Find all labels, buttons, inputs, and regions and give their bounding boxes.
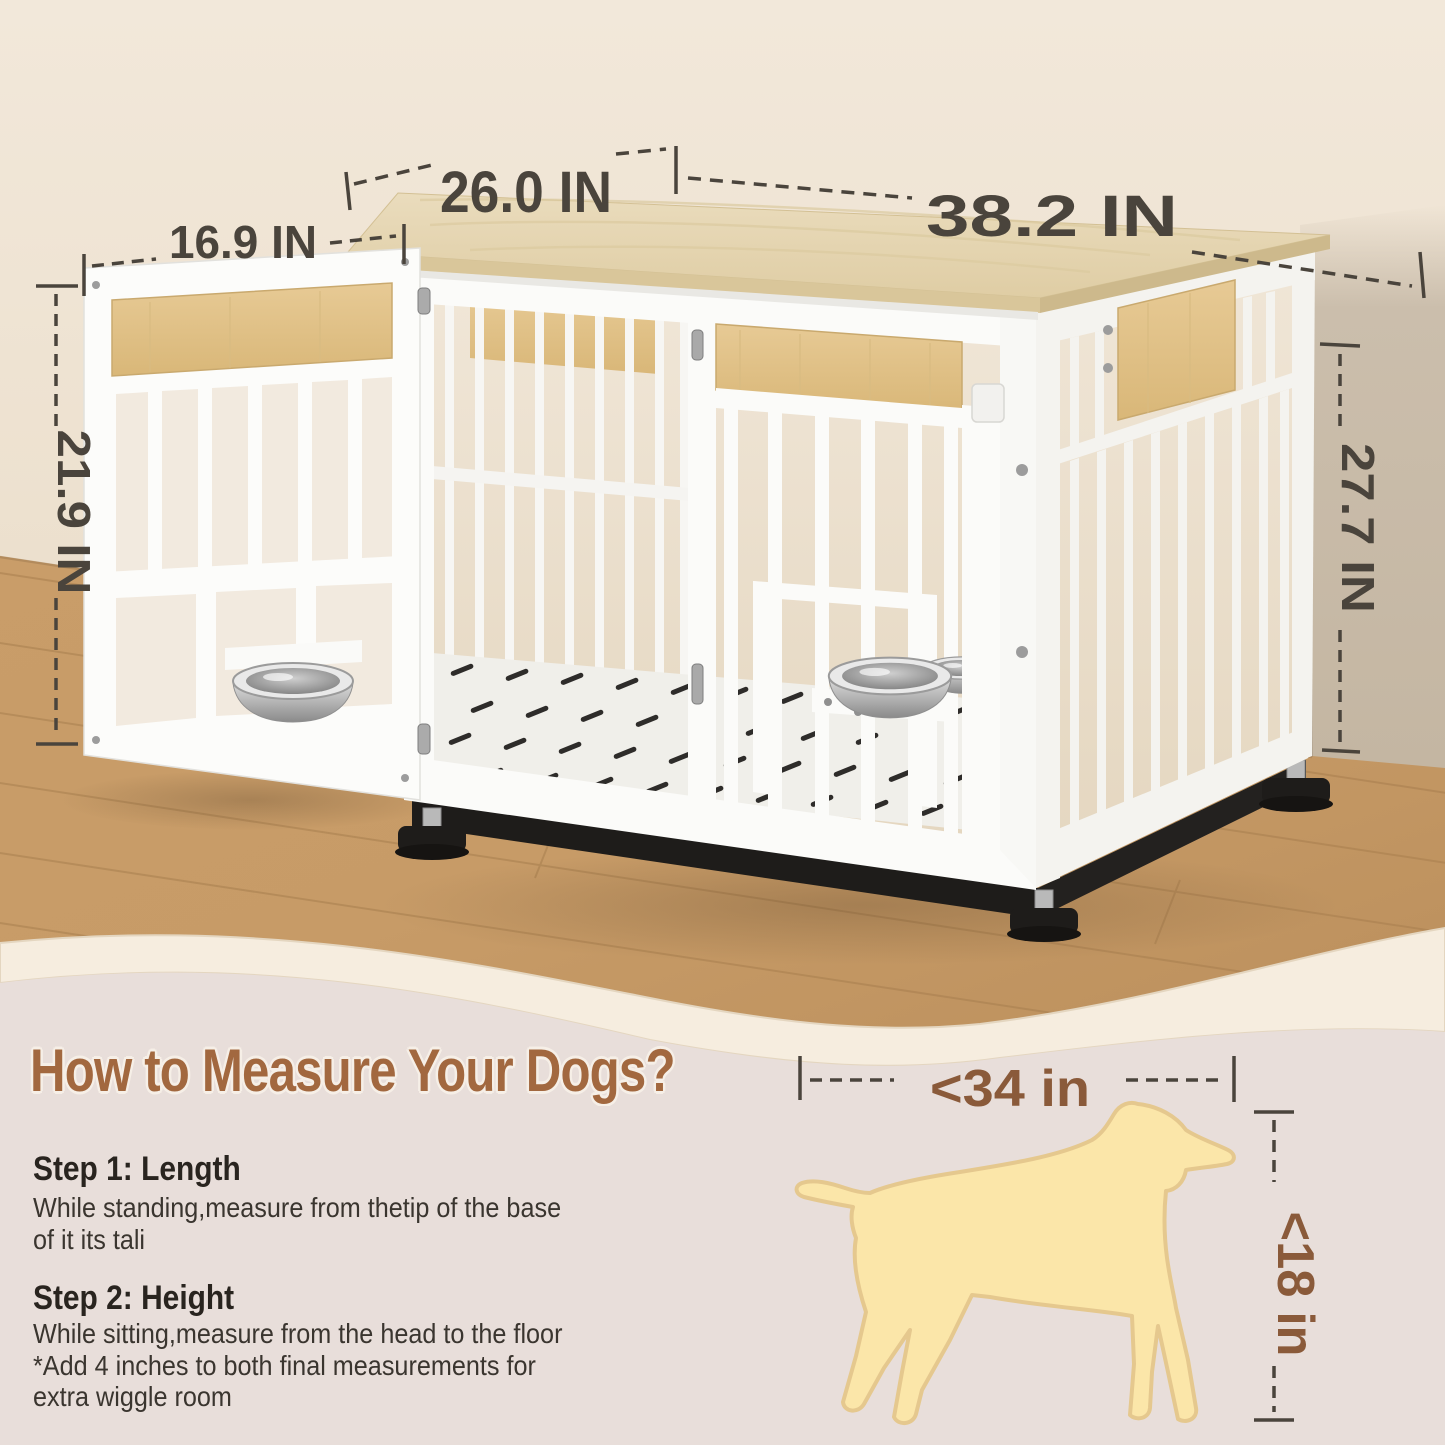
label-door-width: 16.9 IN [169,216,317,268]
front-right-post [1000,310,1036,888]
product-infographic-scene: 26.0 IN 38.2 IN 16.9 IN 21.9 IN 27.7 IN [0,0,1445,1445]
divider-post [688,283,716,842]
label-top-depth: 26.0 IN [440,160,612,225]
label-crate-height: 27.7 IN [1332,443,1384,613]
label-dog-height: <18 in [1266,1212,1324,1357]
label-top-width: 38.2 IN [926,184,1178,249]
inner-door-left-stile [753,581,773,795]
open-door [84,248,430,800]
front-door-right-stile [962,405,1000,852]
right-left-stile [1036,307,1060,888]
right-right-stile [1292,247,1315,764]
label-dog-length: <34 in [930,1060,1090,1118]
door-latch [972,384,1004,422]
label-door-height: 21.9 IN [48,430,100,595]
